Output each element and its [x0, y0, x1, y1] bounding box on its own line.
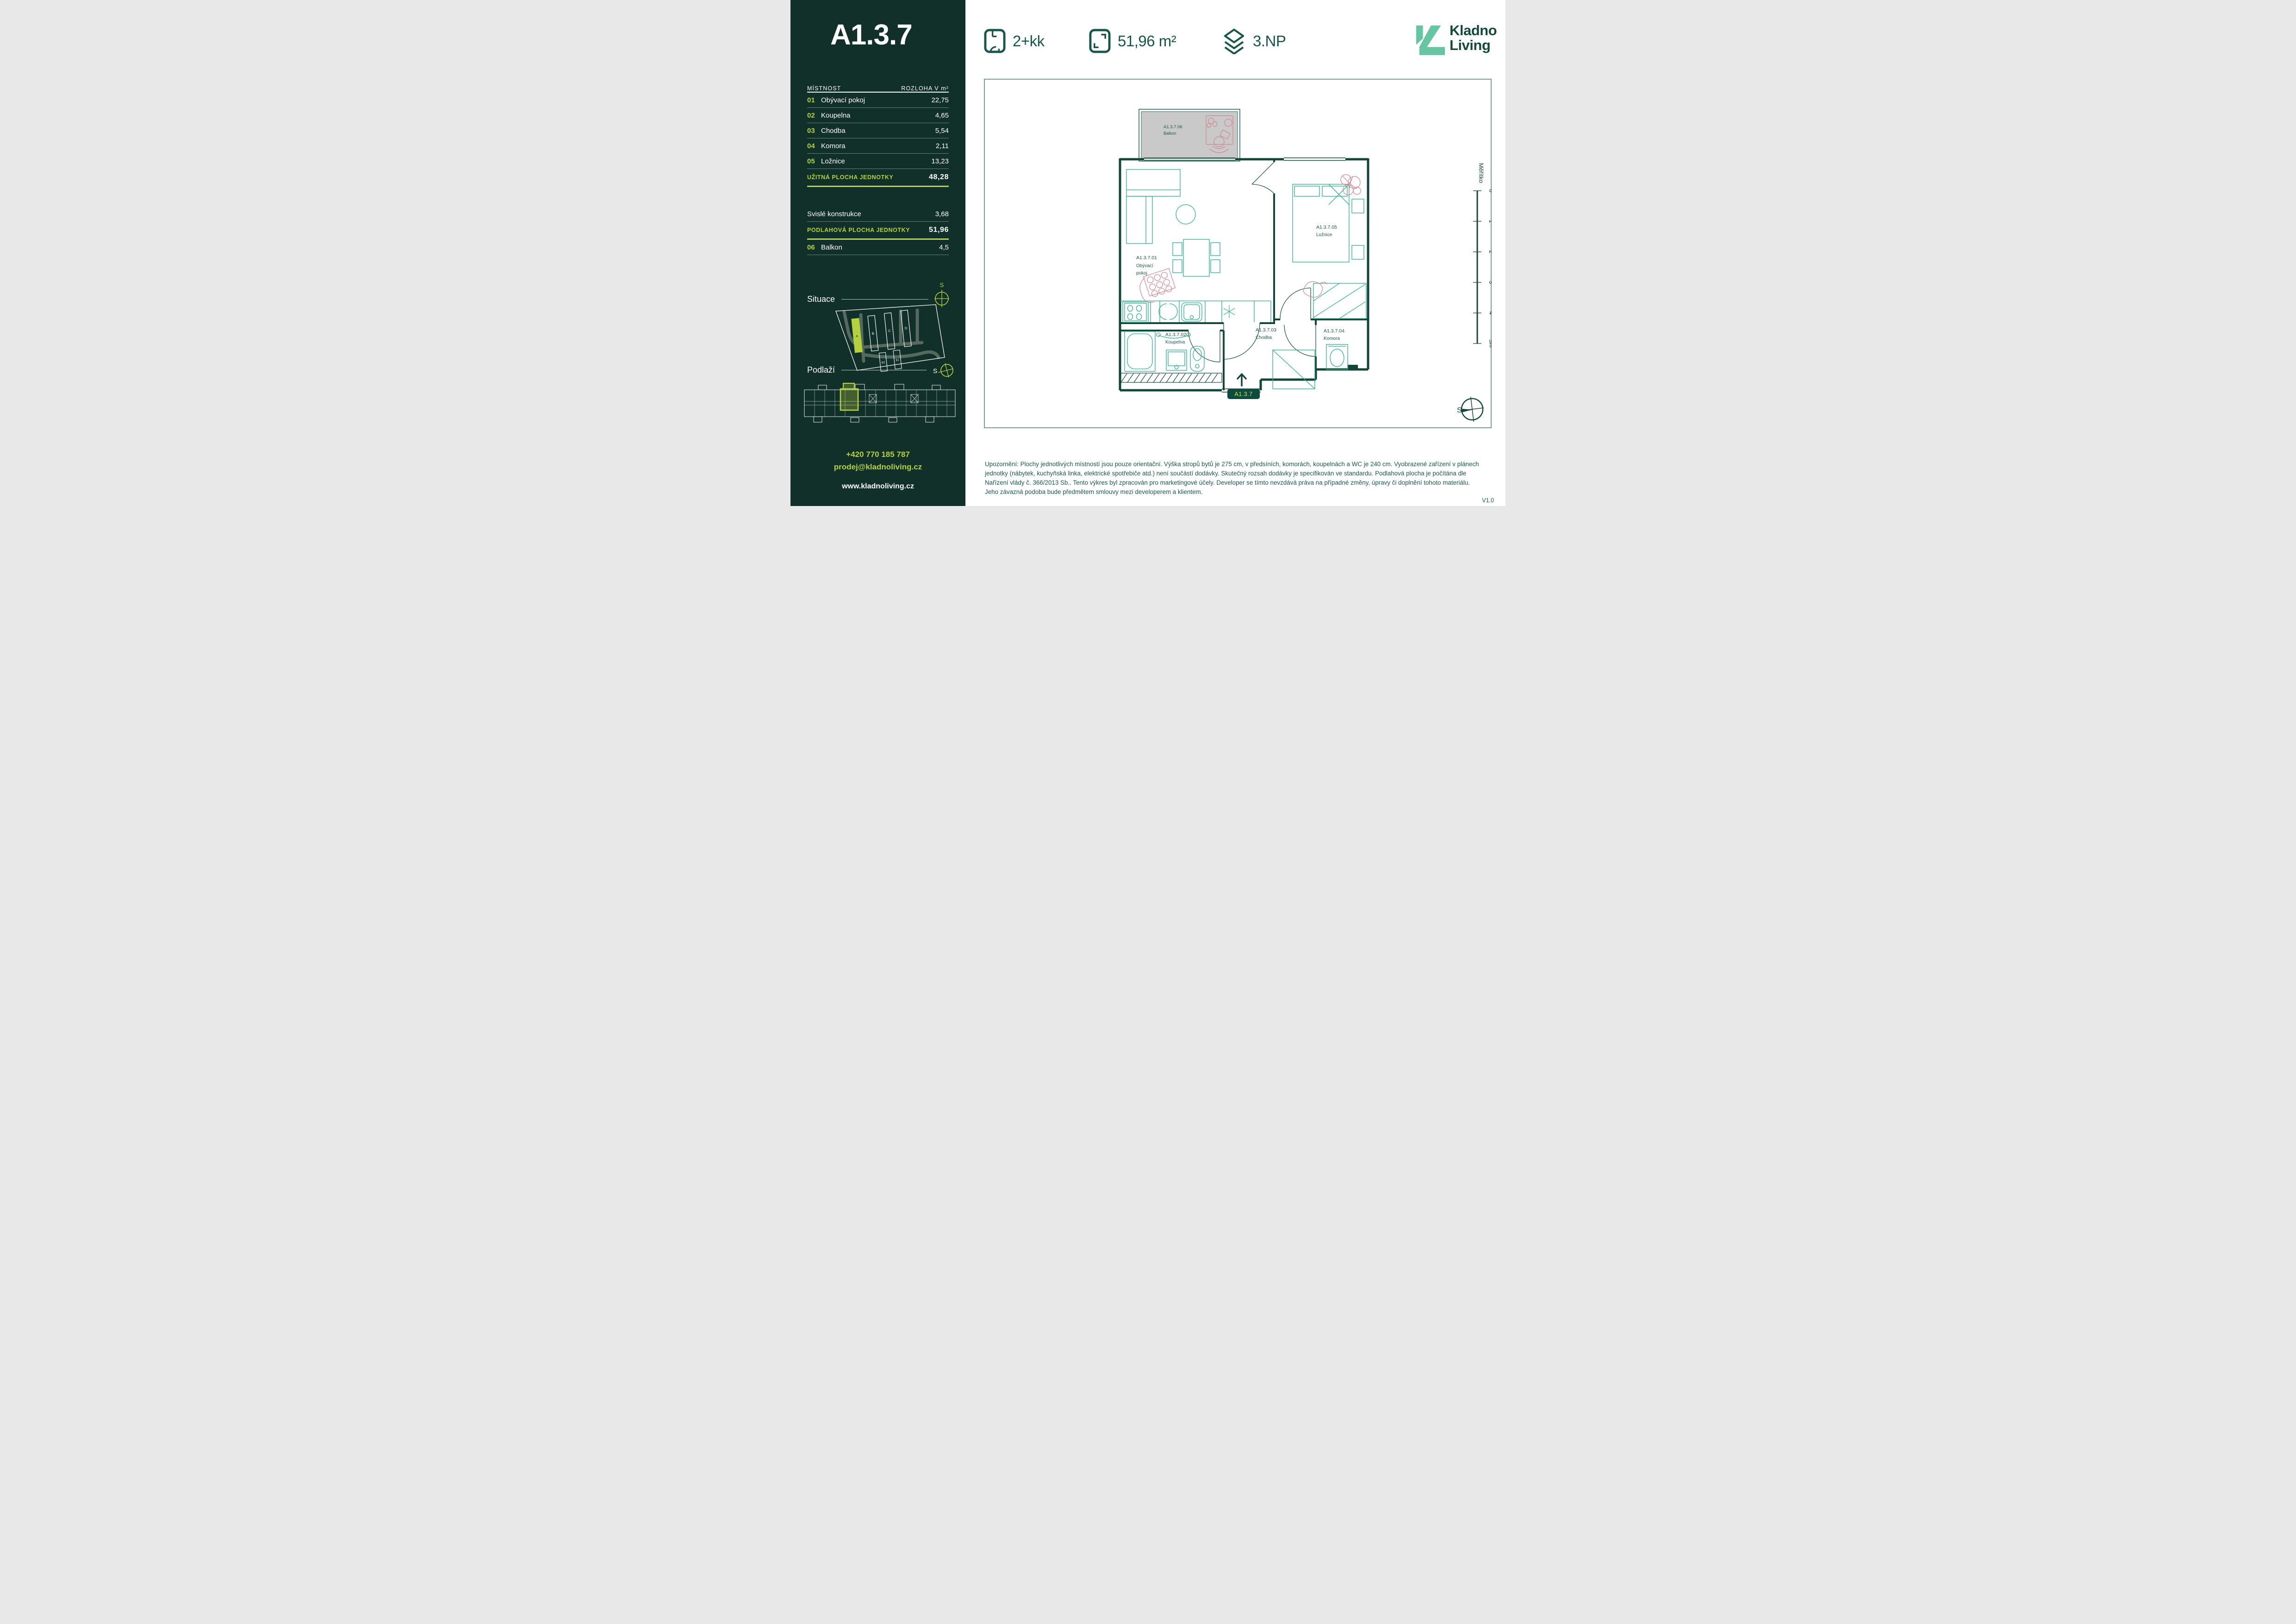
building-label: B [871, 331, 874, 336]
room-code: A1.3.7.03 [1256, 327, 1276, 333]
scale-label: Měřítko [1478, 163, 1485, 183]
floor-plan: A1.3.7.06 Balkon A1.3.7.01 Obývací pokoj… [984, 79, 1492, 428]
row-name: Chodba [821, 127, 935, 135]
vertical-value: 3,68 [935, 210, 949, 218]
stat-floor: 3.NP [1222, 28, 1286, 54]
room-code: A1.3.7.05 [1316, 225, 1337, 230]
row-num: 06 [807, 244, 821, 251]
living-furniture [1120, 169, 1271, 322]
usable-value: 48,28 [929, 173, 949, 181]
building-label: D [904, 326, 908, 331]
version-label: V1.0 [1448, 497, 1494, 504]
scale-tick: 1 [1488, 220, 1492, 223]
podlazi-header: Podlaží [807, 365, 927, 375]
outer-walls [1120, 158, 1368, 392]
room-name: Balkon [1164, 131, 1176, 136]
unit-title: A1.3.7 [830, 19, 912, 51]
floor-icon [1222, 28, 1246, 54]
table-row: 03 Chodba 5,54 [807, 123, 949, 138]
scale-tick: 3 [1488, 281, 1492, 284]
room-code: A1.3.7.04 [1324, 328, 1344, 334]
col-area: ROZLOHA V m² [901, 85, 949, 92]
floor-value: 3.NP [1253, 32, 1286, 50]
bathroom-hatch [1121, 373, 1222, 382]
brochure-page: A1.3.7 MÍSTNOST ROZLOHA V m² 01 Obývací … [790, 0, 1506, 506]
row-name: Ložnice [821, 157, 931, 165]
row-num: 05 [807, 157, 821, 165]
room-name: Chodba [1256, 335, 1272, 340]
phone-link[interactable]: +420 770 185 787 [790, 450, 965, 459]
stat-layout: 2+kk [984, 29, 1045, 53]
vertical-label: Svislé konstrukce [807, 210, 935, 218]
table-row: 04 Komora 2,11 [807, 138, 949, 154]
row-value: 4,5 [939, 244, 949, 251]
building-label: A [856, 334, 859, 338]
building-label: E2 [882, 361, 886, 364]
usable-area-row: UŽITNÁ PLOCHA JEDNOTKY 48,28 [807, 169, 949, 187]
floor-area-value: 51,96 [929, 226, 949, 234]
scale-tick: 4 [1488, 312, 1492, 315]
room-name: Obývací [1136, 263, 1153, 269]
row-name: Komora [821, 142, 936, 150]
disclaimer-line: Nařízení vlády č. 366/2013 Sb.. Tento vý… [985, 478, 1496, 487]
row-value: 5,54 [935, 127, 949, 135]
row-num: 04 [807, 142, 821, 150]
row-value: 13,23 [931, 157, 949, 165]
unit-badge-label: A1.3.7 [1234, 391, 1252, 398]
row-num: 01 [807, 96, 821, 104]
room-name: pokoj [1136, 271, 1147, 276]
scale-tick: 0 [1488, 189, 1492, 193]
row-name: Obývací pokoj [821, 96, 931, 104]
floor-area-label: PODLAHOVÁ PLOCHA JEDNOTKY [807, 227, 929, 233]
table-row: 01 Obývací pokoj 22,75 [807, 93, 949, 108]
row-name: Koupelna [821, 112, 935, 119]
room-name: Komora [1324, 336, 1340, 341]
highlighted-unit [840, 389, 858, 410]
podlazi-label: Podlaží [807, 365, 835, 375]
room-name: Koupelna [1165, 340, 1185, 345]
contact-block: +420 770 185 787 prodej@kladnoliving.cz … [790, 450, 965, 491]
plan-compass-icon: S [1457, 395, 1485, 423]
room-name: Ložnice [1316, 232, 1332, 237]
area-value: 51,96 m² [1118, 32, 1176, 50]
entrance-marker: A1.3.7 [1227, 374, 1260, 399]
row-name: Balkon [821, 244, 939, 251]
compass-letter: S [933, 367, 937, 375]
logo-line2: Living [1450, 38, 1497, 53]
table-row: 02 Koupelna 4,65 [807, 108, 949, 123]
row-num: 02 [807, 112, 821, 119]
highlighted-unit-balcony [843, 383, 854, 389]
logo-line1: Kladno [1450, 23, 1497, 38]
scale-bar: Měřítko 0 1 2 3 4 5m [1473, 163, 1492, 348]
compass-letter: S [940, 281, 944, 288]
bedroom-furniture [1293, 184, 1366, 319]
room-table-header: MÍSTNOST ROZLOHA V m² [807, 79, 949, 93]
website-link[interactable]: www.kladnoliving.cz [790, 482, 965, 491]
room-code: A1.3.7.01 [1136, 255, 1157, 261]
col-room: MÍSTNOST [807, 85, 841, 92]
room-code: A1.3.7.06 [1164, 125, 1182, 130]
balcony-zone [1139, 109, 1240, 161]
table-row: 05 Ložnice 13,23 [807, 154, 949, 169]
floor-area-row: PODLAHOVÁ PLOCHA JEDNOTKY 51,96 [807, 222, 949, 240]
disclaimer: Upozornění: Plochy jednotlivých místnost… [985, 460, 1496, 497]
balcony-row: 06 Balkon 4,5 [807, 240, 949, 255]
area-icon [1089, 29, 1111, 53]
entrance-arrow-icon [1238, 374, 1246, 386]
floor-overview [800, 376, 960, 430]
layout-icon [984, 29, 1006, 53]
scale-tick: 5m [1488, 339, 1492, 347]
row-value: 2,11 [936, 142, 949, 150]
row-value: 4,65 [935, 112, 949, 119]
room-table: MÍSTNOST ROZLOHA V m² 01 Obývací pokoj 2… [807, 79, 949, 255]
scale-tick: 2 [1488, 250, 1492, 254]
email-link[interactable]: prodej@kladnoliving.cz [790, 462, 965, 472]
hall-komora-furniture [1273, 344, 1348, 389]
disclaimer-line: Upozornění: Plochy jednotlivých místnost… [985, 460, 1496, 469]
stat-area: 51,96 m² [1089, 29, 1176, 53]
disclaimer-line: Jeho závazná podoba bude předmětem smlou… [985, 487, 1496, 497]
building-label: C [888, 329, 891, 333]
room-code: A1.3.7.02 [1165, 332, 1186, 337]
usable-label: UŽITNÁ PLOCHA JEDNOTKY [807, 174, 929, 181]
bathroom-fixtures [1125, 331, 1204, 371]
row-value: 22,75 [931, 96, 949, 104]
layout-value: 2+kk [1013, 32, 1045, 50]
logo-mark-icon [1416, 23, 1445, 56]
vertical-structures-row: Svislé konstrukce 3,68 [807, 206, 949, 222]
building-label: E1 [896, 359, 900, 362]
row-num: 03 [807, 127, 821, 135]
kladno-living-logo: Kladno Living [1416, 23, 1497, 56]
disclaimer-line: jednotky (nábytek, kuchyňská linka, elek… [985, 469, 1496, 478]
sidebar: A1.3.7 MÍSTNOST ROZLOHA V m² 01 Obývací … [790, 0, 965, 506]
